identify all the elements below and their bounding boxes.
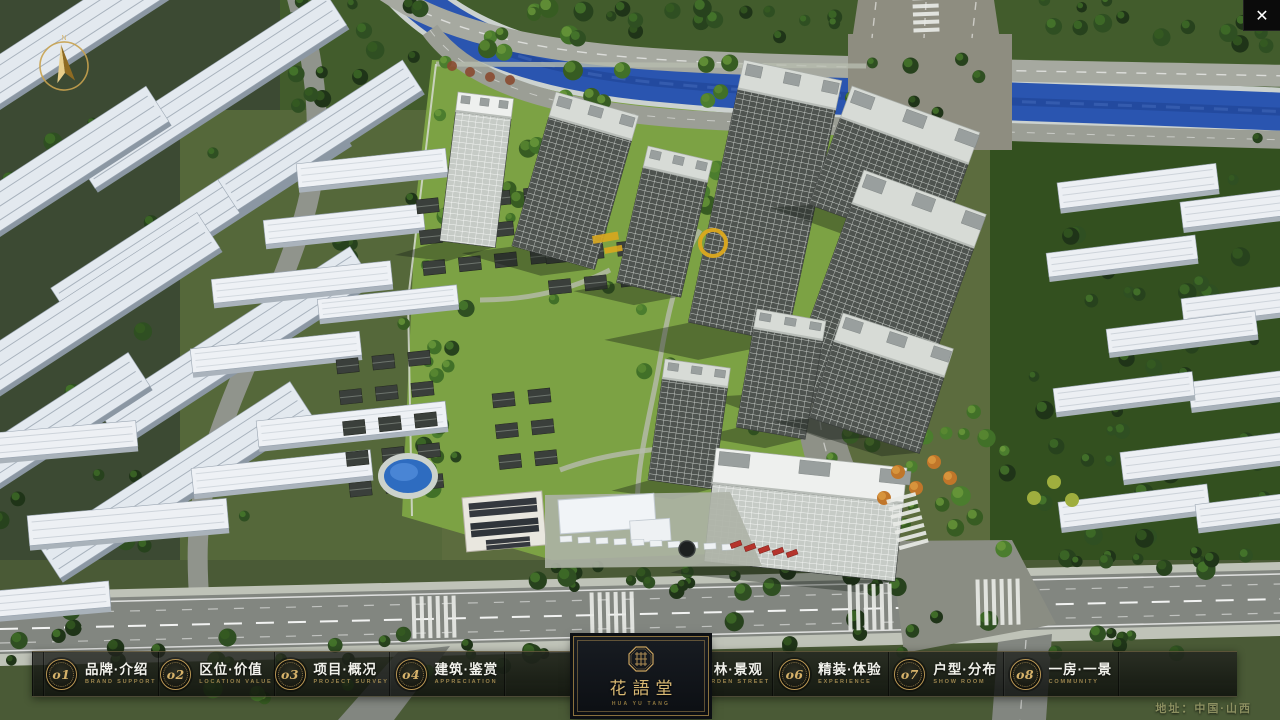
nav-number-badge: o8 <box>1010 659 1041 690</box>
nav-item-location-value[interactable]: o2 区位·价值 LOCATION VALUE <box>158 652 273 696</box>
navbar-spacer <box>32 652 43 696</box>
compass-north-label: N <box>61 35 66 42</box>
nav-number-badge: o6 <box>779 659 810 690</box>
nav-label-en: LOCATION VALUE <box>199 680 272 686</box>
nav-item-brand-intro[interactable]: o1 品牌·介绍 BRAND SUPPORT <box>43 652 158 696</box>
nav-label-en: SHOW ROOM <box>933 680 985 686</box>
compass-icon: N <box>34 32 94 94</box>
nav-label-zh: 精装·体验 <box>818 663 882 677</box>
nav-label-zh: 户型·分布 <box>933 663 997 677</box>
nav-label-zh: 品牌·介绍 <box>85 663 149 677</box>
octagonal-seal-icon <box>628 646 654 672</box>
nav-label-en: BRAND SUPPORT <box>85 680 156 686</box>
nav-number-badge: o7 <box>894 659 925 690</box>
nav-number-badge: o3 <box>275 659 306 690</box>
nav-item-room-view[interactable]: o8 一房·一景 COMMUNITY <box>1003 652 1118 696</box>
navbar-spacer <box>1118 652 1237 696</box>
nav-label-zh: 区位·价值 <box>199 663 263 677</box>
nav-label-zh: 项目·概况 <box>314 663 378 677</box>
nav-number-badge: o2 <box>160 659 191 690</box>
nav-item-project-overview[interactable]: o3 项目·概况 PROJECT SURVEY <box>274 652 389 696</box>
nav-item-interior-experience[interactable]: o6 精装·体验 EXPERIENCE <box>772 652 887 696</box>
nav-label-en: GARDEN STREET <box>699 680 769 686</box>
masterplan-3d-view[interactable] <box>0 0 1280 720</box>
nav-number-badge: o4 <box>396 659 427 690</box>
nav-label-en: PROJECT SURVEY <box>314 680 389 686</box>
close-button[interactable]: ✕ <box>1243 0 1280 31</box>
brand-logo-subtitle: HUA YU TANG <box>612 701 670 707</box>
brand-logo-panel: 花語堂 HUA YU TANG <box>573 636 709 716</box>
project-address: 地址：中国·山西 <box>1155 700 1252 716</box>
nav-label-en: APPRECIATION <box>435 680 498 686</box>
nav-label-en: COMMUNITY <box>1049 680 1099 686</box>
brand-logo-title: 花語堂 <box>610 674 679 699</box>
nav-label-zh: 一房·一景 <box>1049 663 1113 677</box>
presentation-stage: N ✕ o1 品牌·介绍 BRAND SUPPORT o2 区位·价值 LOCA… <box>0 0 1280 720</box>
close-icon: ✕ <box>1255 6 1268 25</box>
nav-item-architecture-appreciation[interactable]: o4 建筑·鉴赏 APPRECIATION <box>389 652 504 696</box>
nav-number-badge: o1 <box>46 659 77 690</box>
nav-item-floorplan-distribution[interactable]: o7 户型·分布 SHOW ROOM <box>888 652 1003 696</box>
nav-label-en: EXPERIENCE <box>818 680 871 686</box>
nav-label-zh: 建筑·鉴赏 <box>435 663 499 677</box>
